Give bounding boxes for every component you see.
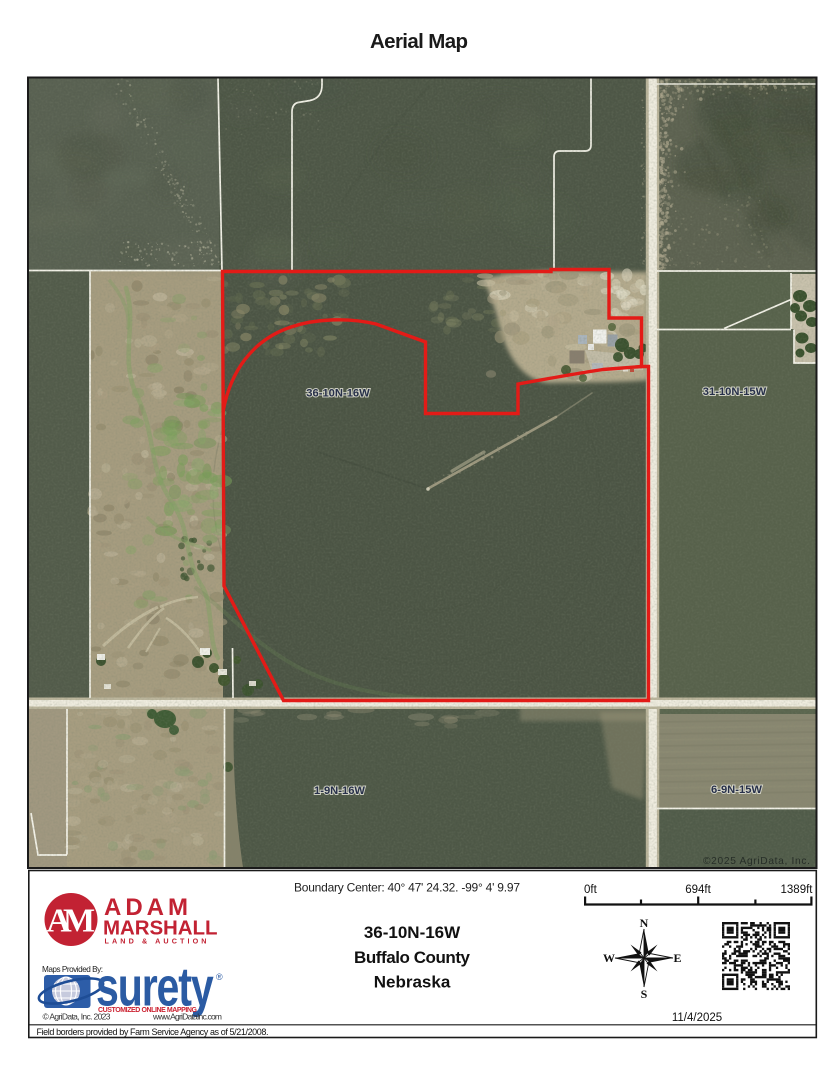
svg-text:Maps Provided By:: Maps Provided By: — [42, 965, 103, 974]
svg-text:E: E — [673, 951, 681, 965]
svg-text:Nebraska: Nebraska — [374, 973, 451, 992]
svg-text:1389ft: 1389ft — [781, 884, 814, 896]
svg-text:©2025 AgriData, Inc.: ©2025 AgriData, Inc. — [703, 856, 810, 867]
svg-text:1-9N-16W: 1-9N-16W — [314, 785, 365, 797]
svg-text:®: ® — [216, 972, 223, 982]
svg-text:Aerial Map: Aerial Map — [370, 30, 468, 53]
svg-text:Boundary Center: 40° 47' 24.32: Boundary Center: 40° 47' 24.32. -99° 4' … — [294, 881, 520, 895]
svg-text:36-10N-16W: 36-10N-16W — [306, 388, 370, 400]
svg-text:www.AgriDataInc.com: www.AgriDataInc.com — [152, 1012, 222, 1022]
svg-text:694ft: 694ft — [685, 884, 711, 896]
svg-text:Field borders provided by Farm: Field borders provided by Farm Service A… — [37, 1027, 269, 1037]
svg-text:S: S — [641, 987, 648, 1001]
svg-text:W: W — [603, 951, 615, 965]
svg-text:31-10N-15W: 31-10N-15W — [703, 386, 767, 398]
svg-text:36-10N-16W: 36-10N-16W — [364, 923, 461, 942]
svg-text:© AgriData, Inc. 2023: © AgriData, Inc. 2023 — [43, 1012, 111, 1022]
svg-text:11/4/2025: 11/4/2025 — [672, 1012, 722, 1024]
svg-text:0ft: 0ft — [584, 884, 598, 896]
svg-text:Buffalo County: Buffalo County — [354, 948, 471, 967]
svg-text:6-9N-15W: 6-9N-15W — [711, 784, 762, 796]
svg-text:N: N — [640, 916, 649, 930]
